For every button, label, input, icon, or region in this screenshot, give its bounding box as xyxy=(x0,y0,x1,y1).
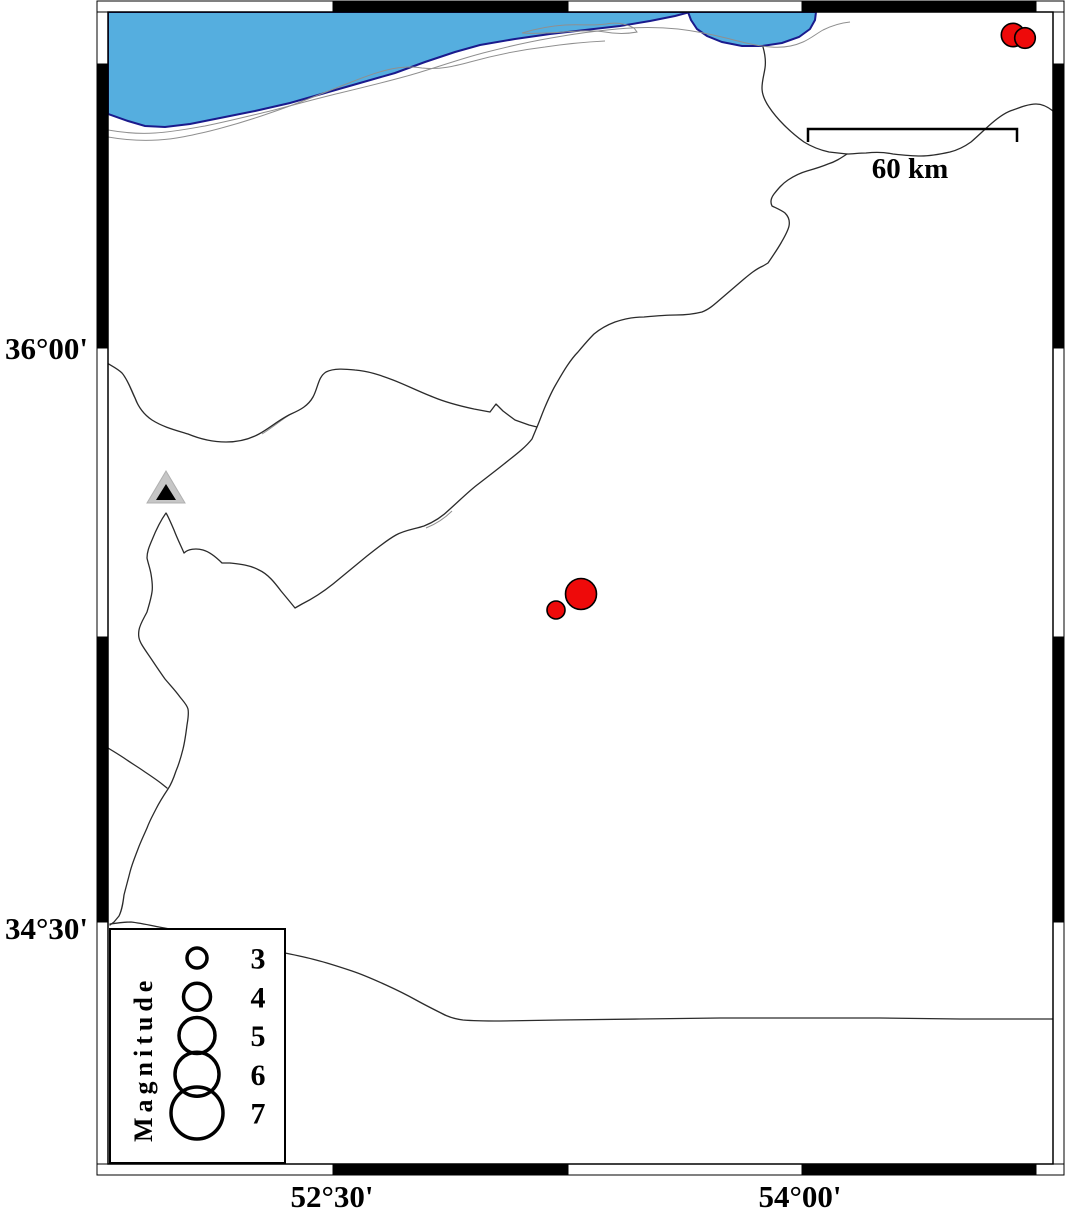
earthquake-markers xyxy=(547,23,1035,619)
legend-label-m3: 3 xyxy=(251,943,266,976)
frame-bottom-black-2 xyxy=(802,1164,1036,1175)
seismicity-map: 60 km 36°00' 34°30' 52°30' 54°00' xyxy=(0,0,1066,1214)
earthquake-marker xyxy=(1015,28,1036,49)
boundary-branch-west xyxy=(108,748,167,788)
boundary-to-bay xyxy=(762,47,847,154)
boundary-northeast xyxy=(537,154,847,427)
x-tick-label-54-00: 54°00' xyxy=(758,1179,841,1214)
legend-label-m7: 7 xyxy=(251,1098,266,1131)
frame-right-black-2 xyxy=(1053,637,1064,922)
frame-left-black-2 xyxy=(97,637,108,922)
y-tick-label-36: 36°00' xyxy=(5,331,88,366)
boundary-ghost-2 xyxy=(262,414,291,434)
boundary-west xyxy=(107,363,537,925)
x-tick-label-52-30: 52°30' xyxy=(290,1179,373,1214)
legend-label-m6: 6 xyxy=(251,1059,266,1092)
frame-top-black-2 xyxy=(802,1,1036,12)
earthquake-marker xyxy=(547,601,565,619)
frame-top-black-1 xyxy=(333,1,568,12)
frame-bottom-black-1 xyxy=(333,1164,568,1175)
scale-bar-line xyxy=(808,129,1017,142)
frame-right-black-1 xyxy=(1053,64,1064,348)
legend-label-m4: 4 xyxy=(251,981,266,1014)
scale-bar: 60 km xyxy=(808,129,1017,185)
earthquake-marker xyxy=(566,579,597,610)
seismicity-map-page: { "map": { "y_axis_labels": [ {"text": "… xyxy=(0,0,1066,1214)
gorgan-bay-polygon xyxy=(688,12,816,46)
y-tick-label-34-30: 34°30' xyxy=(5,911,88,946)
station-triangle xyxy=(147,471,185,503)
caspian-sea-polygon xyxy=(108,12,690,127)
frame-left-black-1 xyxy=(97,64,108,348)
legend-title: Magnitude xyxy=(129,976,158,1142)
map-content: 60 km xyxy=(107,12,1053,1021)
scale-bar-label: 60 km xyxy=(872,153,949,185)
legend-label-m5: 5 xyxy=(251,1020,266,1053)
magnitude-legend: Magnitude 34567 xyxy=(110,929,285,1163)
boundary-ghost-3 xyxy=(426,511,452,528)
